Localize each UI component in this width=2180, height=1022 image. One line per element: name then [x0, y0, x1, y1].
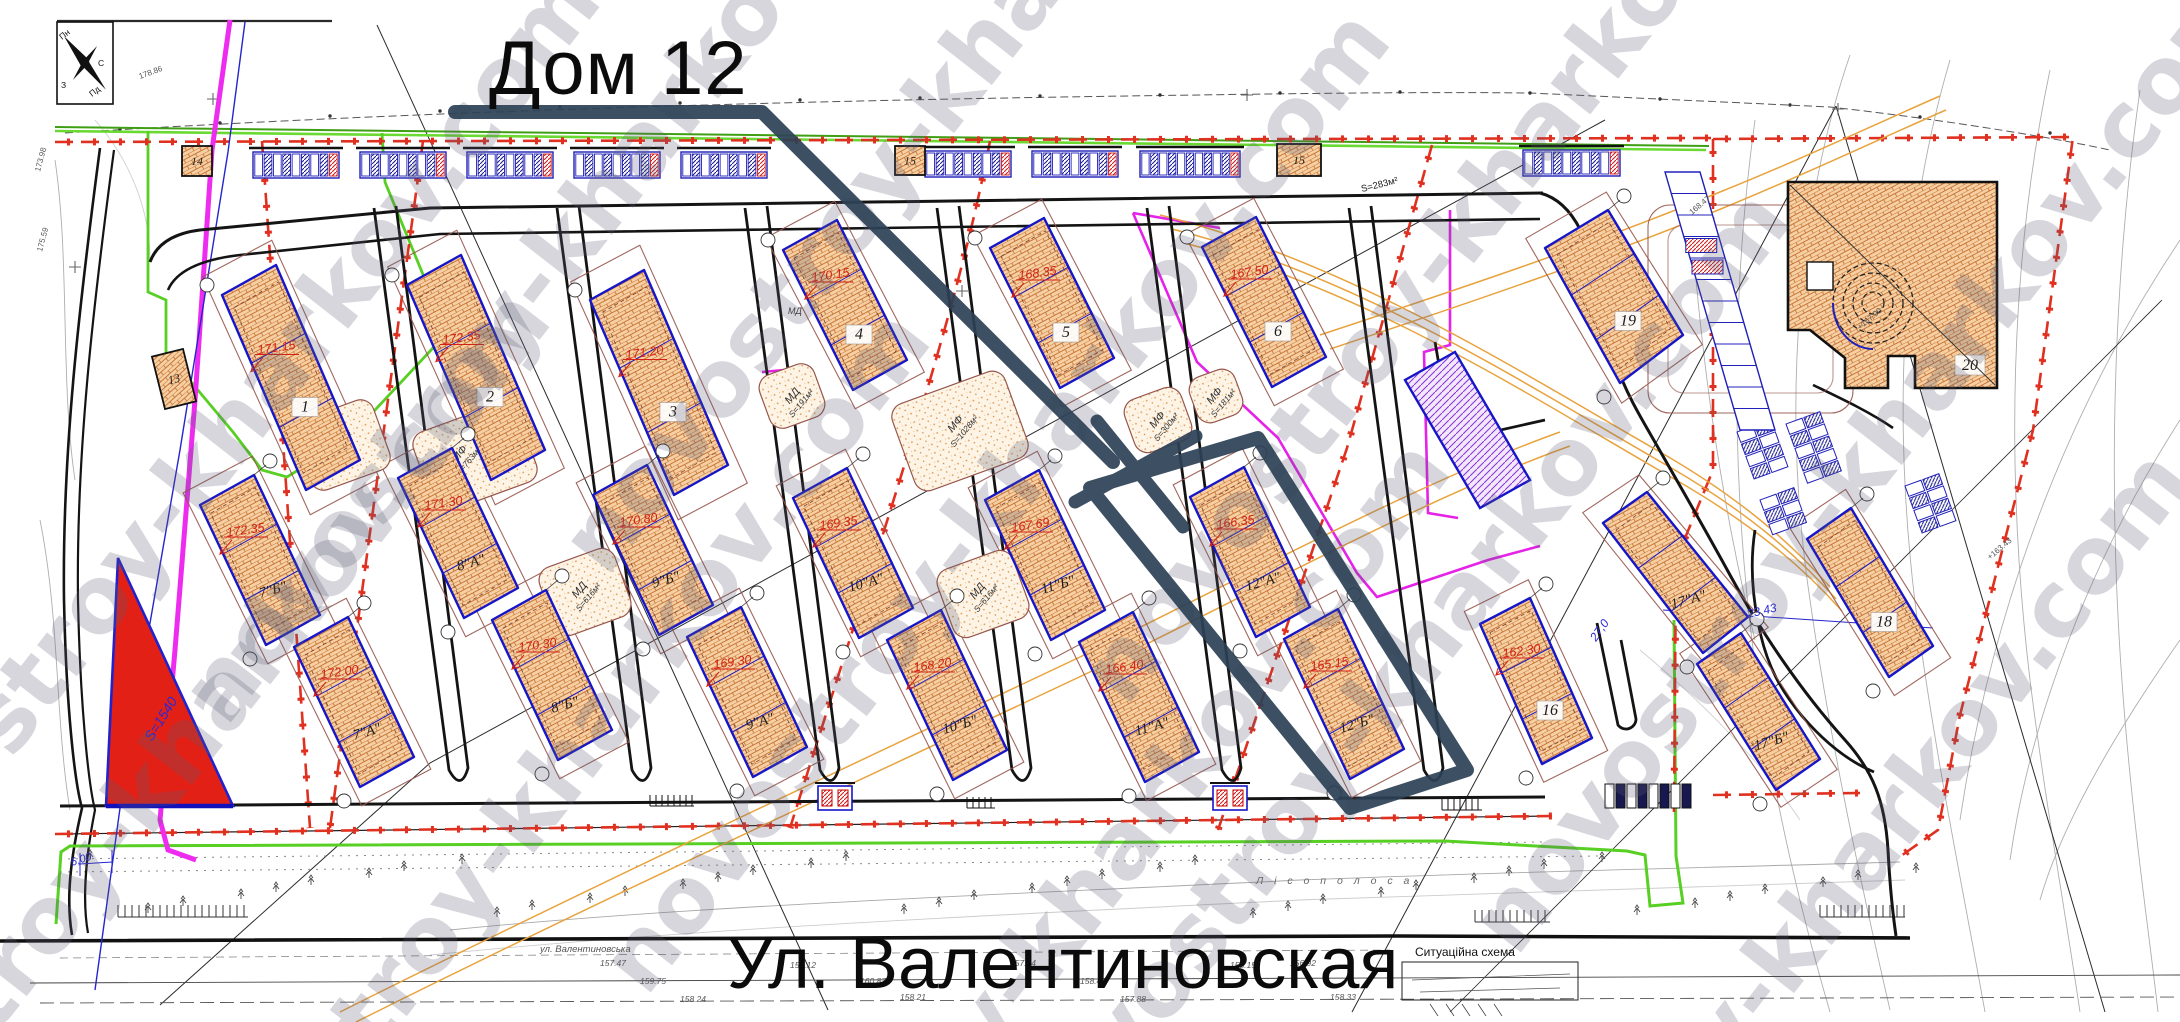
compass-east-label: С: [98, 58, 104, 68]
service-building: 14: [182, 146, 212, 176]
house12-label: Дом 12: [489, 26, 748, 111]
building-number: 16: [1542, 702, 1558, 719]
svg-text:158.24: 158.24: [680, 994, 706, 1004]
building-number: 18: [1876, 614, 1892, 631]
master-plan-drawing: 157.47158.24157.12158.21157.44157.88158.…: [0, 0, 2180, 1022]
inset-title: Ситуаційна схема: [1415, 945, 1515, 959]
forest-strip-caption: Л і с о п о л о с а: [1255, 875, 1413, 887]
site-plan-screenshot: 157.47158.24157.12158.21157.44157.88158.…: [0, 0, 2180, 1022]
compass-rose: Пн С З Пд: [48, 22, 121, 104]
street-name-label: Ул. Валентиновская: [727, 924, 1398, 1004]
parking-strip: [1028, 147, 1122, 177]
compass-west-label: З: [61, 80, 66, 90]
street-small-caption: ул. Валентиновська: [539, 944, 631, 955]
building-number: 6: [1274, 323, 1282, 340]
parking-strip: [249, 148, 343, 178]
service-building-number: 14: [191, 154, 203, 168]
